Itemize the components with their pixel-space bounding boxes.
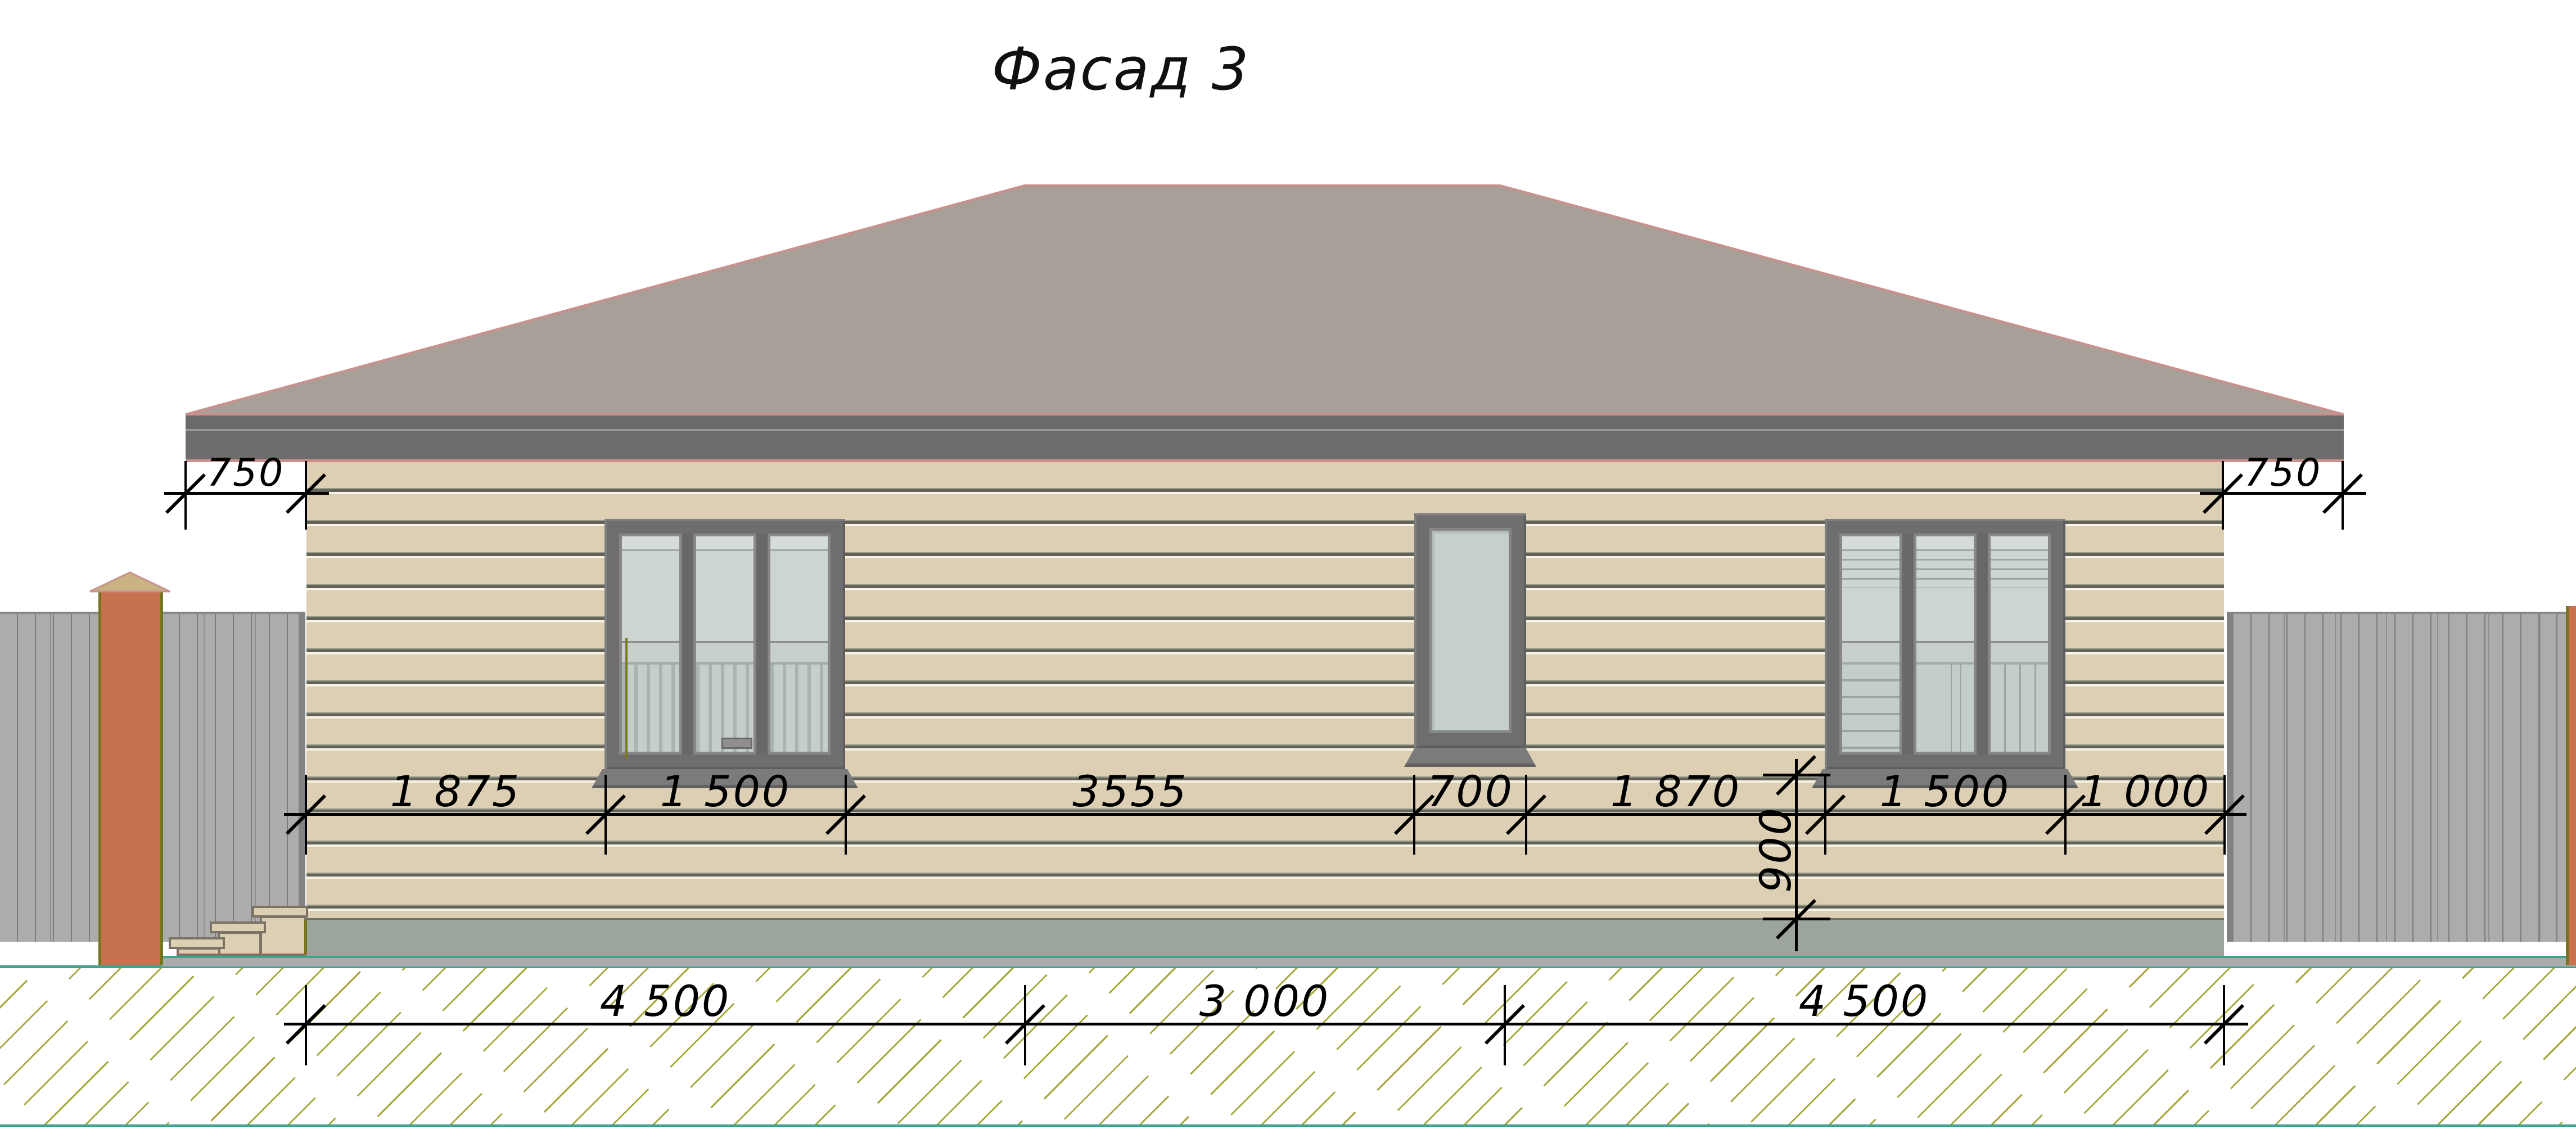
dim-label: 1 875 xyxy=(366,770,545,813)
dim-label-sill-height: 900 xyxy=(1754,805,1797,894)
dim-label: 4 500 xyxy=(575,980,755,1023)
facade-elevation-drawing: Фасад 3 xyxy=(0,0,2576,1143)
dim-label: 4 500 xyxy=(1774,980,1954,1023)
dim-label: 3555 xyxy=(1040,770,1220,813)
dim-label: 1 870 xyxy=(1586,770,1766,813)
dim-label: 1 500 xyxy=(635,770,815,813)
dim-label: 700 xyxy=(1381,770,1560,813)
dim-label: 1 500 xyxy=(1855,770,2035,813)
dim-label-eave-right: 750 xyxy=(2221,454,2345,493)
dim-label: 1 000 xyxy=(2055,770,2235,813)
dimension-layer: 750 750 1 875 1 500 3555 700 1 870 1 500… xyxy=(0,0,2576,1143)
dim-label-eave-left: 750 xyxy=(184,454,308,493)
dim-label: 3 000 xyxy=(1175,980,1355,1023)
